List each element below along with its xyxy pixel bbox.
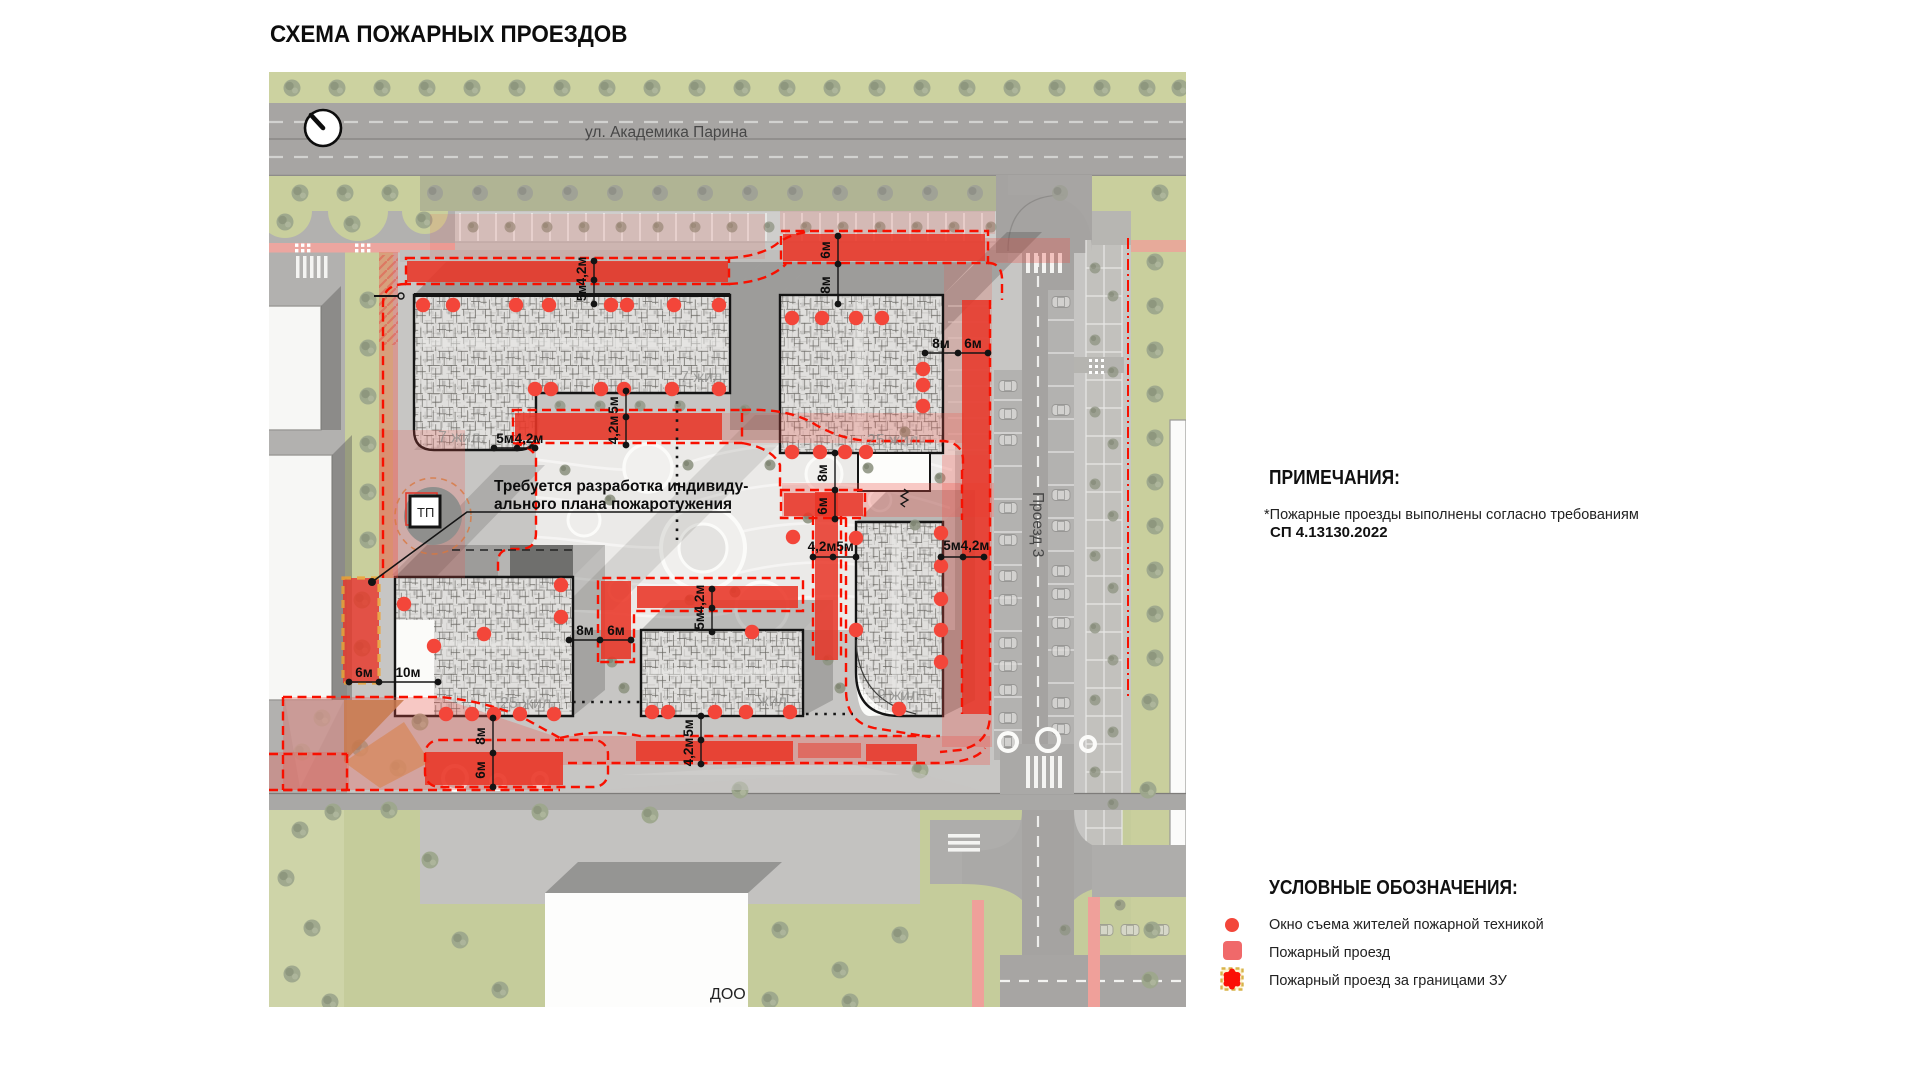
svg-text:6м: 6м [964,336,982,351]
svg-text:жил: жил [758,693,787,710]
svg-text:ального плана пожаротужения: ального плана пожаротужения [494,496,732,513]
svg-text:5м: 5м [496,431,514,446]
svg-text:4,2м: 4,2м [574,257,589,286]
svg-text:6м: 6м [473,761,488,779]
svg-text:5м: 5м [681,719,696,737]
svg-text:8м: 8м [818,276,833,294]
svg-text:ул. Академика Парина: ул. Академика Парина [585,124,748,141]
svg-text:5м: 5м [943,538,961,553]
svg-text:25 жил.: 25 жил. [867,432,923,449]
svg-text:6м: 6м [815,497,830,515]
svg-text:5м: 5м [606,396,621,414]
svg-text:4,2м: 4,2м [692,585,707,614]
svg-text:ТП: ТП [417,505,434,520]
svg-text:8м: 8м [473,727,488,745]
svg-text:25 жил.: 25 жил. [500,695,556,712]
svg-text:8м: 8м [932,336,950,351]
svg-text:8м: 8м [576,623,594,638]
svg-text:Требуется разработка индивиду-: Требуется разработка индивиду- [494,478,748,495]
svg-text:9 жил.: 9 жил. [877,687,924,704]
svg-text:4,2м: 4,2м [606,416,621,445]
svg-text:4,2м: 4,2м [515,431,544,446]
svg-text:4,2м: 4,2м [681,738,696,767]
svg-text:5м: 5м [575,285,589,301]
svg-text:6м: 6м [355,665,373,680]
svg-text:4,2м: 4,2м [808,539,837,554]
svg-text:6м: 6м [818,241,833,259]
svg-text:7 жил.: 7 жил. [438,429,485,446]
svg-text:5м: 5м [692,612,707,630]
svg-text:4,2м: 4,2м [961,538,990,553]
svg-text:8м: 8м [815,464,830,482]
svg-text:7 жил.: 7 жил. [680,369,727,386]
svg-text:5м: 5м [836,539,854,554]
svg-text:Проезд 3: Проезд 3 [1029,492,1046,557]
svg-text:ДОО: ДОО [710,986,746,1003]
svg-text:10м: 10м [395,665,420,680]
svg-text:6м: 6м [607,623,625,638]
